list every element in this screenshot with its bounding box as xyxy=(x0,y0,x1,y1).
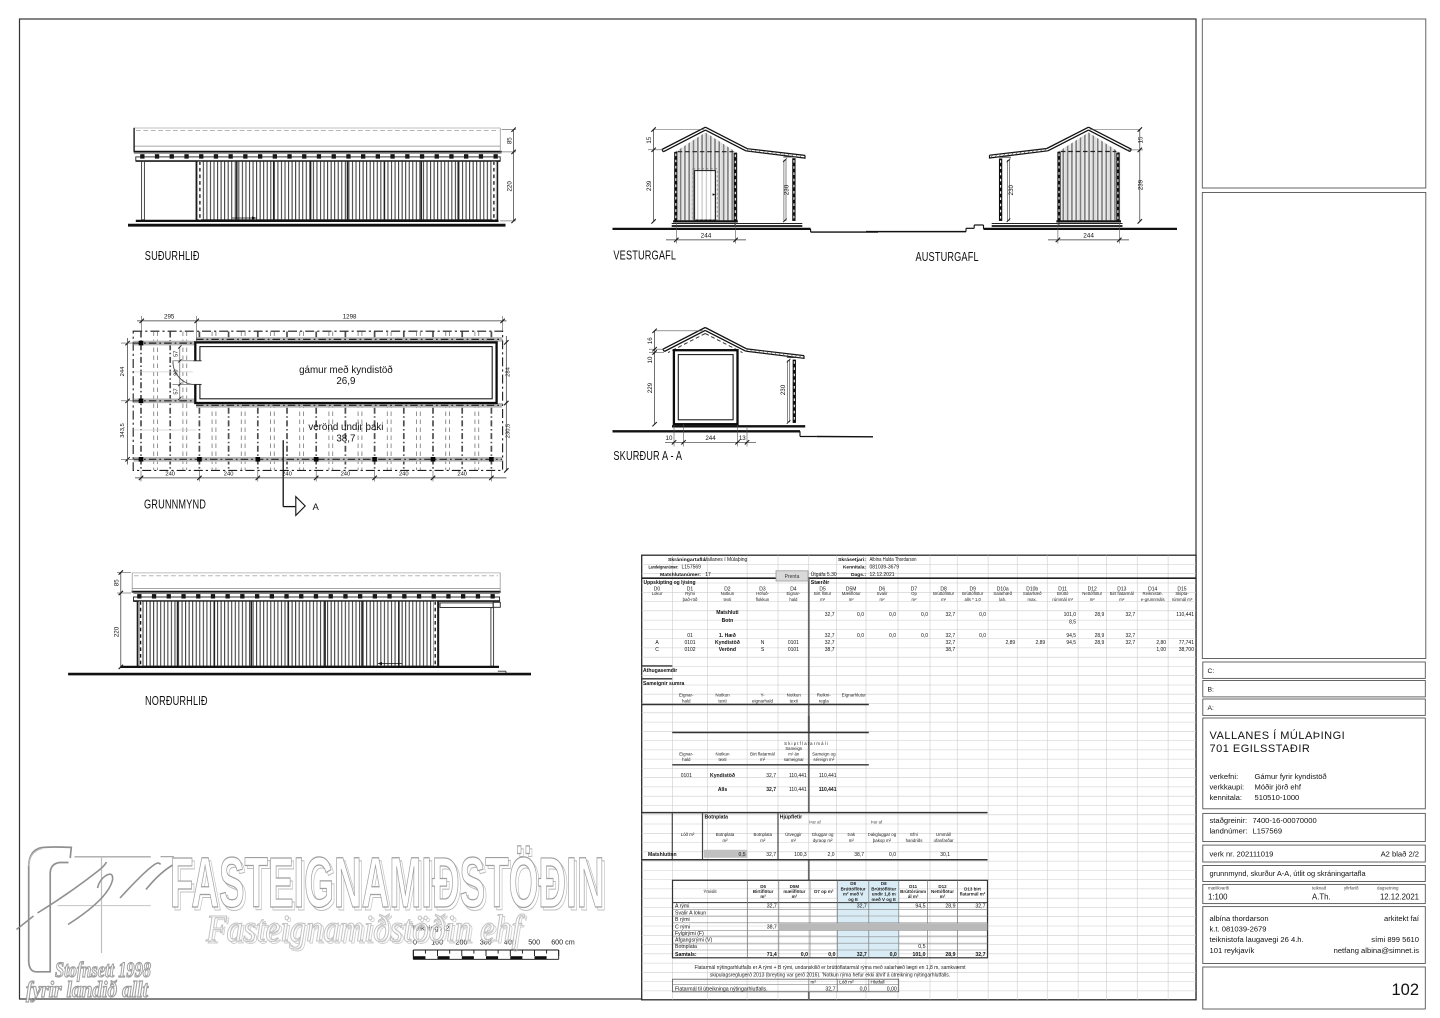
svg-text:texti: texti xyxy=(723,597,731,602)
svg-text:L157569: L157569 xyxy=(682,565,702,571)
svg-text:220: 220 xyxy=(506,181,513,192)
svg-text:Sameignir sumra: Sameignir sumra xyxy=(643,681,684,687)
svg-text:230: 230 xyxy=(780,384,787,395)
svg-text:220: 220 xyxy=(113,626,120,637)
svg-text:10: 10 xyxy=(647,356,654,363)
svg-text:m²: m² xyxy=(722,838,728,843)
svg-text:Flatarmál til útreikninga nýti: Flatarmál til útreikninga nýtingarhlutfa… xyxy=(675,986,768,992)
svg-text:þakop m²: þakop m² xyxy=(873,838,892,843)
svg-text:alls * 1,0: alls * 1,0 xyxy=(964,597,981,602)
svg-text:2,89: 2,89 xyxy=(1035,640,1045,646)
svg-text:N: N xyxy=(761,640,765,646)
svg-text:32,7: 32,7 xyxy=(825,640,835,646)
svg-text:hald: hald xyxy=(682,698,691,703)
svg-text:Verönd: Verönd xyxy=(719,647,736,653)
svg-text:Salarhæð: Salarhæð xyxy=(993,591,1012,596)
svg-text:SKURÐUR A - A: SKURÐUR A - A xyxy=(613,450,682,464)
svg-text:landnúmer:: landnúmer: xyxy=(1210,827,1248,836)
svg-text:það-röð: það-röð xyxy=(683,597,698,602)
svg-text:B:: B: xyxy=(1208,686,1215,693)
svg-text:Eignarhlutur: Eignarhlutur xyxy=(842,693,867,698)
svg-text:244: 244 xyxy=(1083,233,1094,240)
svg-text:Mæliflötur: Mæliflötur xyxy=(842,591,861,596)
svg-text:m²: m² xyxy=(820,597,826,602)
svg-text:Birt flatarmál: Birt flatarmál xyxy=(1110,591,1134,596)
svg-text:94,5: 94,5 xyxy=(915,904,925,910)
svg-text:90: 90 xyxy=(173,369,179,375)
svg-text:A: A xyxy=(313,502,320,513)
svg-text:Landeignanúmer:: Landeignanúmer: xyxy=(649,565,679,571)
svg-text:Þakgluggar og: Þakgluggar og xyxy=(868,832,897,837)
svg-text:701 EGILSSTAÐIR: 701 EGILSSTAÐIR xyxy=(1210,743,1311,755)
svg-text:244: 244 xyxy=(705,435,716,442)
svg-text:32,7: 32,7 xyxy=(857,952,867,958)
svg-text:m²: m² xyxy=(811,980,817,985)
svg-text:32,7: 32,7 xyxy=(945,640,955,646)
svg-text:15: 15 xyxy=(1137,136,1144,143)
svg-text:94,5: 94,5 xyxy=(1066,633,1076,639)
svg-text:Þar af: Þar af xyxy=(809,819,821,824)
svg-text:m² án: m² án xyxy=(788,751,800,756)
svg-text:Botnplata: Botnplata xyxy=(705,815,729,821)
svg-text:0,0: 0,0 xyxy=(828,952,835,958)
svg-text:Matshluti: Matshluti xyxy=(716,610,739,616)
svg-text:110,441: 110,441 xyxy=(1176,612,1194,618)
svg-text:AUSTURGAFL: AUSTURGAFL xyxy=(916,251,979,265)
svg-text:Ýmislit: Ýmislit xyxy=(703,888,717,894)
svg-text:85: 85 xyxy=(113,579,120,586)
svg-text:0101: 0101 xyxy=(788,640,799,646)
svg-text:Vallanes í Múlaþing: Vallanes í Múlaþing xyxy=(704,557,747,563)
svg-text:8,5: 8,5 xyxy=(1069,619,1076,625)
svg-text:32,7: 32,7 xyxy=(766,852,776,858)
svg-text:með V og E: með V og E xyxy=(872,896,897,902)
svg-text:38,7: 38,7 xyxy=(767,924,777,930)
svg-text:verkefni:: verkefni: xyxy=(1210,772,1239,781)
svg-text:Samtals:: Samtals: xyxy=(675,952,697,958)
svg-text:texti: texti xyxy=(718,757,726,762)
svg-text:A2 blað 2/2: A2 blað 2/2 xyxy=(1381,850,1419,859)
svg-text:Hlutfall: Hlutfall xyxy=(871,980,885,985)
svg-text:m² með V: m² með V xyxy=(843,891,863,897)
svg-text:Dags.:: Dags.: xyxy=(851,572,866,578)
svg-text:240: 240 xyxy=(282,472,292,478)
svg-text:0,0: 0,0 xyxy=(921,612,928,618)
svg-text:flokkun: flokkun xyxy=(756,597,770,602)
svg-text:Sameign og: Sameign og xyxy=(812,751,836,756)
svg-text:m²: m² xyxy=(760,894,766,899)
svg-text:0,5: 0,5 xyxy=(918,944,925,950)
svg-text:Brúttó: Brúttó xyxy=(1057,591,1069,596)
svg-text:k.t. 081039-2679: k.t. 081039-2679 xyxy=(1210,925,1267,934)
svg-text:m²: m² xyxy=(792,894,798,899)
svg-text:C rými: C rými xyxy=(675,924,690,930)
svg-text:01: 01 xyxy=(687,633,693,639)
svg-text:Y-: Y- xyxy=(760,693,765,698)
svg-text:grunnmynd, skurður A-A, útlit: grunnmynd, skurður A-A, útlit og skránin… xyxy=(1210,869,1367,878)
svg-text:Skráningartafla:: Skráningartafla: xyxy=(668,557,707,563)
svg-text:28,9: 28,9 xyxy=(1095,612,1105,618)
svg-text:1,00: 1,00 xyxy=(1156,647,1166,653)
svg-text:Notkun: Notkun xyxy=(787,693,802,698)
svg-text:0,0: 0,0 xyxy=(860,986,867,992)
svg-text:0,0: 0,0 xyxy=(889,633,896,639)
svg-text:1:100: 1:100 xyxy=(1208,893,1228,902)
svg-text:0102: 0102 xyxy=(684,647,695,653)
svg-text:Brúttóflötur: Brúttóflötur xyxy=(933,591,955,596)
svg-text:2,80: 2,80 xyxy=(1156,640,1166,646)
svg-text:teiknistofa laugavegi 26 4.h.: teiknistofa laugavegi 26 4.h. xyxy=(1210,935,1304,944)
svg-text:Útgáfa 5.30: Útgáfa 5.30 xyxy=(811,571,837,578)
svg-text:295: 295 xyxy=(164,314,175,321)
svg-text:0,00: 0,00 xyxy=(887,986,897,992)
svg-text:ál m³: ál m³ xyxy=(908,894,919,899)
svg-text:mælikvarði: mælikvarði xyxy=(1208,885,1229,890)
svg-text:séreign m²: séreign m² xyxy=(813,757,834,762)
svg-text:Eignar-: Eignar- xyxy=(786,591,800,596)
svg-text:32,7: 32,7 xyxy=(825,612,835,618)
svg-text:0,0: 0,0 xyxy=(890,952,897,958)
svg-text:Gluggar og: Gluggar og xyxy=(812,832,834,837)
svg-text:albína thordarson: albína thordarson xyxy=(1210,914,1269,923)
svg-text:Botn: Botn xyxy=(722,618,734,624)
svg-text:Prenta: Prenta xyxy=(785,574,800,580)
svg-text:600 cm: 600 cm xyxy=(551,938,575,947)
svg-text:0,5: 0,5 xyxy=(739,852,746,858)
svg-text:100,3: 100,3 xyxy=(794,852,807,858)
svg-text:Uppskipting og lýsing: Uppskipting og lýsing xyxy=(644,580,696,586)
svg-text:94,5: 94,5 xyxy=(1066,640,1076,646)
svg-text:0,0: 0,0 xyxy=(857,612,864,618)
svg-text:eignarhald: eignarhald xyxy=(752,698,774,703)
svg-text:1. Hæð: 1. Hæð xyxy=(719,632,736,639)
svg-text:230,5: 230,5 xyxy=(505,424,511,439)
svg-text:101,0: 101,0 xyxy=(1064,612,1077,618)
svg-text:Höfuð-: Höfuð- xyxy=(756,591,769,596)
svg-text:Efni: Efni xyxy=(910,832,918,837)
svg-text:244: 244 xyxy=(701,233,712,240)
svg-text:7400-16-00070000: 7400-16-00070000 xyxy=(1253,816,1317,825)
svg-text:hald: hald xyxy=(789,597,798,602)
svg-text:texti: texti xyxy=(790,698,798,703)
svg-text:B rými: B rými xyxy=(675,917,690,923)
svg-text:VESTURGAFL: VESTURGAFL xyxy=(613,249,676,263)
svg-text:26,9: 26,9 xyxy=(336,376,355,387)
svg-text:Afgangsrými (V): Afgangsrými (V) xyxy=(675,938,712,944)
svg-text:244: 244 xyxy=(120,366,126,376)
svg-text:38,7: 38,7 xyxy=(945,647,955,653)
svg-text:229: 229 xyxy=(647,382,654,393)
svg-text:netfang albina@simnet.is: netfang albina@simnet.is xyxy=(1334,946,1420,955)
svg-text:verk nr. 202111019: verk nr. 202111019 xyxy=(1210,850,1274,859)
svg-text:Útveggir: Útveggir xyxy=(785,832,802,837)
svg-text:13: 13 xyxy=(739,435,746,442)
svg-text:101 reykjavík: 101 reykjavík xyxy=(1210,946,1255,955)
svg-text:Kennitala:: Kennitala: xyxy=(843,565,866,571)
svg-text:rúmmál m³: rúmmál m³ xyxy=(1172,597,1193,602)
svg-text:max.: max. xyxy=(1028,597,1037,602)
svg-text:240: 240 xyxy=(341,472,351,478)
svg-text:Lokur: Lokur xyxy=(652,591,663,596)
svg-text:gámur með kyndistöð: gámur með kyndistöð xyxy=(299,365,393,376)
svg-text:0,0: 0,0 xyxy=(921,633,928,639)
svg-text:0,0: 0,0 xyxy=(889,852,896,858)
svg-text:32,7: 32,7 xyxy=(825,633,835,639)
svg-text:Nettóflötur: Nettóflötur xyxy=(1082,591,1102,596)
svg-text:fyrir landið allt: fyrir landið allt xyxy=(26,977,149,1002)
svg-text:38,700: 38,700 xyxy=(1179,647,1195,653)
svg-text:Lóð m²: Lóð m² xyxy=(681,832,695,837)
svg-text:Móðir jörð ehf: Móðir jörð ehf xyxy=(1255,783,1302,792)
svg-text:77,741: 77,741 xyxy=(1179,640,1195,646)
svg-text:hald: hald xyxy=(682,757,691,762)
svg-text:VALLANES Í MÚLAÞINGI: VALLANES Í MÚLAÞINGI xyxy=(1210,729,1346,742)
svg-text:0101: 0101 xyxy=(684,640,695,646)
svg-text:Notkun: Notkun xyxy=(715,693,730,698)
svg-text:500: 500 xyxy=(528,938,540,947)
svg-text:343,5: 343,5 xyxy=(120,423,126,438)
svg-text:Alls: Alls xyxy=(718,787,728,793)
svg-text:2,0: 2,0 xyxy=(828,852,835,858)
svg-text:Lóð m²: Lóð m² xyxy=(839,979,854,985)
svg-text:12.12.2021: 12.12.2021 xyxy=(1380,893,1419,902)
svg-text:0,0: 0,0 xyxy=(979,612,986,618)
svg-text:240: 240 xyxy=(399,472,409,478)
svg-text:081039-3679: 081039-3679 xyxy=(870,565,900,571)
svg-text:240: 240 xyxy=(224,472,234,478)
svg-text:Kyndistöð: Kyndistöð xyxy=(715,639,740,646)
svg-text:32,7: 32,7 xyxy=(945,612,955,618)
svg-text:A.Th.: A.Th. xyxy=(1312,893,1331,902)
svg-text:m²: m² xyxy=(760,838,766,843)
svg-text:Flatarmál nýtingarhlutfalls er: Flatarmál nýtingarhlutfalls er A rými + … xyxy=(694,964,966,971)
svg-text:Birt flatarmál: Birt flatarmál xyxy=(750,751,775,756)
svg-text:0,0: 0,0 xyxy=(979,633,986,639)
svg-text:Rými: Rými xyxy=(685,591,695,596)
svg-text:Skrásetjari:: Skrásetjari: xyxy=(838,557,866,563)
svg-text:1298: 1298 xyxy=(343,314,357,321)
svg-text:71,4: 71,4 xyxy=(767,952,777,958)
svg-text:ofanfarðar: ofanfarðar xyxy=(934,838,955,843)
svg-text:Botnplata: Botnplata xyxy=(716,832,735,837)
svg-text:0,0: 0,0 xyxy=(857,633,864,639)
svg-text:Botnplata: Botnplata xyxy=(675,944,697,950)
svg-text:verönd undir þaki: verönd undir þaki xyxy=(308,422,383,433)
svg-text:NORÐURHLIÐ: NORÐURHLIÐ xyxy=(145,695,208,709)
svg-text:32,7: 32,7 xyxy=(975,904,985,910)
svg-text:Op: Op xyxy=(911,591,917,596)
svg-text:284: 284 xyxy=(505,366,511,376)
svg-text:SUÐURHLIÐ: SUÐURHLIÐ xyxy=(145,250,200,264)
svg-text:verkkaupi:: verkkaupi: xyxy=(1210,783,1245,792)
svg-text:m²: m² xyxy=(1119,597,1125,602)
svg-text:230: 230 xyxy=(1008,184,1015,195)
svg-text:m²: m² xyxy=(849,597,855,602)
svg-text:yfirfarið: yfirfarið xyxy=(1344,885,1359,890)
svg-text:32,7: 32,7 xyxy=(857,904,867,910)
svg-text:510510-1000: 510510-1000 xyxy=(1255,793,1300,802)
svg-text:Birt flötur: Birt flötur xyxy=(814,591,832,596)
svg-text:32,7: 32,7 xyxy=(975,952,985,958)
svg-text:Reikni-: Reikni- xyxy=(817,693,832,698)
svg-text:handriðs: handriðs xyxy=(906,838,924,843)
svg-text:m²: m² xyxy=(760,757,766,762)
svg-text:28,9: 28,9 xyxy=(945,904,955,910)
svg-text:Matshlutinn: Matshlutinn xyxy=(648,852,677,858)
svg-text:30,1: 30,1 xyxy=(940,852,950,858)
svg-text:m²: m² xyxy=(849,838,855,843)
svg-text:Notkun: Notkun xyxy=(716,751,730,756)
svg-text:kennitala:: kennitala: xyxy=(1210,793,1243,802)
svg-text:D7 op m²: D7 op m² xyxy=(814,889,834,894)
svg-text:Athugasemdir: Athugasemdir xyxy=(643,668,677,674)
svg-text:28,9: 28,9 xyxy=(1095,633,1105,639)
svg-text:Fasteignamiðstöðin ehf: Fasteignamiðstöðin ehf xyxy=(205,907,525,949)
svg-text:240: 240 xyxy=(165,472,175,478)
svg-text:0,0: 0,0 xyxy=(889,612,896,618)
svg-text:m²: m² xyxy=(879,597,885,602)
svg-text:32,7: 32,7 xyxy=(1125,633,1135,639)
svg-text:e-grunnmáls: e-grunnmáls xyxy=(1141,597,1165,602)
svg-text:staðgreinir:: staðgreinir: xyxy=(1210,816,1248,825)
svg-text:Albína Hulda Thordarson: Albína Hulda Thordarson xyxy=(870,557,917,563)
svg-text:Eignar-: Eignar- xyxy=(679,751,694,756)
svg-text:32,7: 32,7 xyxy=(945,633,955,639)
svg-text:32,7: 32,7 xyxy=(766,787,776,793)
svg-text:16: 16 xyxy=(647,337,654,344)
svg-text:110,441: 110,441 xyxy=(819,773,837,779)
svg-text:38,7: 38,7 xyxy=(854,852,864,858)
svg-text:57: 57 xyxy=(173,388,179,394)
svg-text:texti: texti xyxy=(718,698,726,703)
svg-text:Botnplata: Botnplata xyxy=(754,832,773,837)
svg-text:32,7: 32,7 xyxy=(825,986,835,992)
svg-text:240: 240 xyxy=(457,472,467,478)
svg-text:Notkun: Notkun xyxy=(721,591,735,596)
svg-text:m²: m² xyxy=(940,894,946,899)
svg-text:Svalir: Svalir xyxy=(877,591,888,596)
svg-text:10: 10 xyxy=(666,435,673,442)
svg-text:rúmmál m³: rúmmál m³ xyxy=(1052,597,1073,602)
svg-text:A:: A: xyxy=(1208,705,1215,712)
svg-text:32,7: 32,7 xyxy=(1125,612,1135,618)
svg-text:Salarhæð: Salarhæð xyxy=(1023,591,1042,596)
svg-text:32,7: 32,7 xyxy=(767,904,777,910)
svg-text:sími 899 5610: sími 899 5610 xyxy=(1371,935,1419,944)
svg-text:Stærðir: Stærðir xyxy=(811,579,829,586)
svg-text:12.12.2021: 12.12.2021 xyxy=(870,572,895,578)
svg-text:m²: m² xyxy=(911,597,917,602)
svg-text:38,7: 38,7 xyxy=(825,647,835,653)
svg-text:230: 230 xyxy=(784,184,791,195)
svg-text:L157569: L157569 xyxy=(1253,827,1283,836)
svg-text:arkitekt faí: arkitekt faí xyxy=(1384,914,1420,923)
svg-text:102: 102 xyxy=(1391,981,1419,999)
svg-text:32,7: 32,7 xyxy=(1125,640,1135,646)
svg-text:0101: 0101 xyxy=(788,647,799,653)
svg-text:m²: m² xyxy=(941,597,947,602)
svg-text:Þar af: Þar af xyxy=(871,819,883,824)
svg-text:38,7: 38,7 xyxy=(336,434,355,445)
svg-text:Kyndistöð: Kyndistöð xyxy=(710,772,735,779)
svg-text:S k i p t f l a t a r m á l: S k i p t f l a t a r m á l i xyxy=(784,741,828,746)
svg-text:15: 15 xyxy=(646,136,653,143)
svg-text:A rými: A rými xyxy=(675,904,689,910)
svg-text:dagsetning: dagsetning xyxy=(1377,885,1399,890)
svg-text:239: 239 xyxy=(646,180,653,191)
svg-text:m²: m² xyxy=(1090,597,1096,602)
svg-text:110,441: 110,441 xyxy=(789,787,807,793)
svg-text:0,0: 0,0 xyxy=(801,952,808,958)
svg-text:Matshlutanúmer:: Matshlutanúmer: xyxy=(660,572,701,578)
svg-text:og E: og E xyxy=(848,897,858,902)
svg-text:Ummál/: Ummál/ xyxy=(936,832,952,837)
svg-text:Reiknistæ.: Reiknistæ. xyxy=(1143,591,1163,596)
svg-text:teiknað: teiknað xyxy=(1312,885,1327,890)
svg-text:flatarmál m²: flatarmál m² xyxy=(960,892,986,897)
svg-text:101,0: 101,0 xyxy=(913,952,926,958)
svg-text:Eignar-: Eignar- xyxy=(679,693,694,698)
svg-text:32,7: 32,7 xyxy=(766,773,776,779)
svg-text:Brúttóflötur: Brúttóflötur xyxy=(962,591,984,596)
svg-text:110,441: 110,441 xyxy=(819,787,837,793)
svg-text:C:: C: xyxy=(1208,668,1215,675)
svg-text:regla: regla xyxy=(819,698,830,703)
svg-text:85: 85 xyxy=(506,137,513,144)
svg-text:Skipta-: Skipta- xyxy=(1175,591,1189,596)
svg-text:GRUNNMYND: GRUNNMYND xyxy=(144,498,206,512)
svg-text:m²: m² xyxy=(791,838,797,843)
svg-text:Þak: Þak xyxy=(848,832,856,837)
svg-text:239: 239 xyxy=(1137,179,1144,190)
svg-text:28,9: 28,9 xyxy=(945,952,955,958)
svg-text:C: C xyxy=(655,647,659,653)
svg-text:28,9: 28,9 xyxy=(1095,640,1105,646)
svg-text:Hjúpfletir: Hjúpfletir xyxy=(780,815,802,821)
svg-text:Gámur fyrir kyndistöð: Gámur fyrir kyndistöð xyxy=(1255,772,1327,781)
svg-text:lah.: lah. xyxy=(999,597,1006,602)
svg-text:Fylgirými (F): Fylgirými (F) xyxy=(675,931,704,937)
svg-text:skipulagsreglugerð 2013 (breyt: skipulagsreglugerð 2013 (breyting var ge… xyxy=(710,971,950,978)
svg-text:0101: 0101 xyxy=(681,773,692,779)
svg-text:57: 57 xyxy=(173,351,179,357)
svg-text:sameignar: sameignar xyxy=(784,757,805,762)
svg-text:dyraop m²: dyraop m² xyxy=(813,838,833,843)
svg-text:2,89: 2,89 xyxy=(1005,640,1015,646)
svg-text:110,441: 110,441 xyxy=(789,773,807,779)
svg-text:17: 17 xyxy=(705,572,711,578)
svg-text:Svalir A lokun: Svalir A lokun xyxy=(675,910,706,916)
